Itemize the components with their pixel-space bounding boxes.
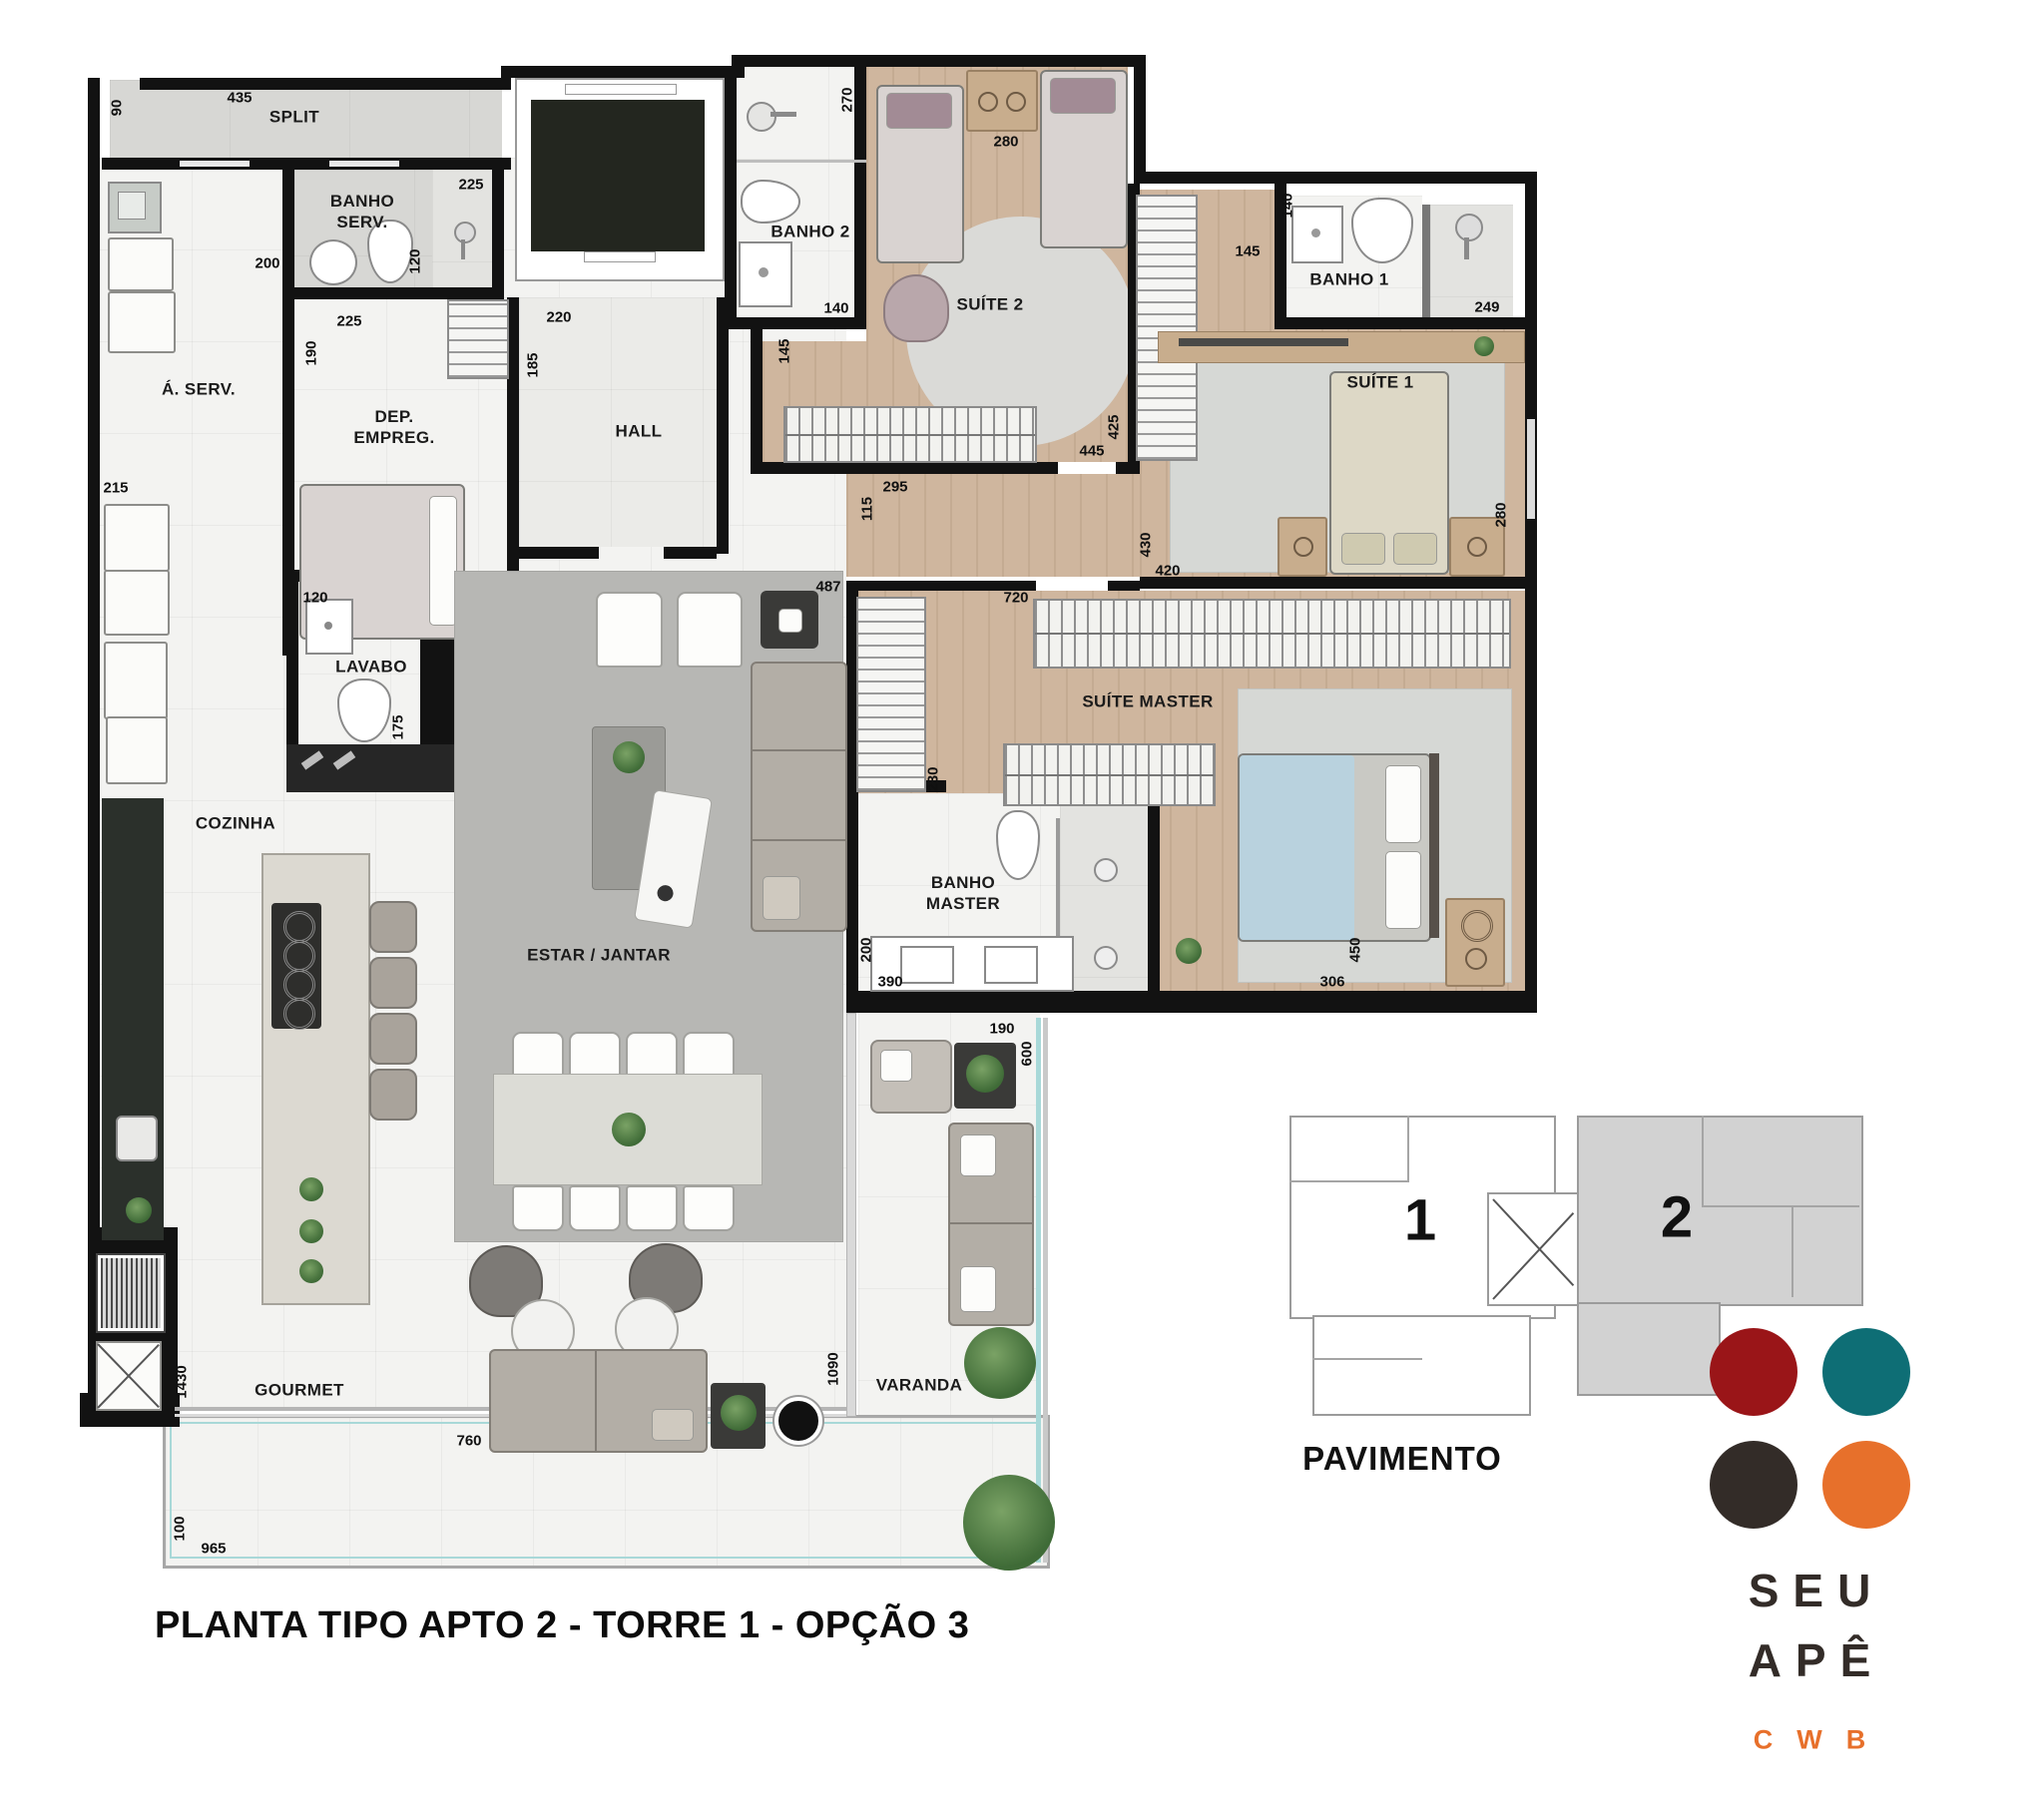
wall [1134, 172, 1537, 184]
sofa-seam [950, 1222, 1032, 1224]
burner-icon [283, 998, 315, 1030]
keyplan-unit1-number: 1 [1404, 1187, 1436, 1254]
logo-word-ape: APÊ [1735, 1633, 1885, 1687]
room-label-banho1: BANHO 1 [1309, 268, 1388, 289]
room-label-varanda: VARANDA [876, 1374, 963, 1395]
pillow [960, 1134, 996, 1176]
pillow [886, 93, 952, 129]
wall [102, 158, 511, 170]
dim-hall-depth: 185 [525, 352, 542, 377]
fridge [104, 642, 168, 719]
banho-serv-sink [309, 239, 357, 285]
dim-split-depth: 90 [109, 100, 126, 117]
burner-icon [283, 969, 315, 1001]
varanda-outer-rim [1043, 1018, 1048, 1563]
wall [725, 67, 737, 329]
vanity-sink [984, 946, 1038, 984]
wall [664, 547, 717, 559]
dim-estar-width: 487 [815, 579, 840, 596]
wall [1525, 184, 1537, 1013]
dim-suite2-door: 145 [776, 338, 793, 363]
dim-closet-depth: 425 [1106, 414, 1123, 439]
room-label-hall: HALL [616, 420, 663, 441]
dim-aserv-width: 215 [103, 480, 128, 497]
dim-varanda-length: 1090 [825, 1352, 842, 1385]
dining-chair [683, 1185, 735, 1231]
shower-partition [1422, 205, 1430, 317]
x-line [1492, 1212, 1574, 1300]
tree [963, 1475, 1055, 1571]
nightstand [966, 70, 1038, 132]
dim-dep-width: 225 [336, 313, 361, 330]
lavabo-sink [305, 599, 353, 655]
dining-chair [569, 1185, 621, 1231]
lamp-icon [1006, 92, 1026, 112]
cabinet [104, 504, 170, 572]
armchair [677, 592, 743, 668]
varanda-side-wall [846, 1013, 856, 1417]
plant [612, 1113, 646, 1146]
sofa-varanda [948, 1123, 1034, 1326]
dim-suite1-depth: 280 [1493, 502, 1510, 527]
sofa-seam [753, 839, 845, 841]
sofa-gourmet [489, 1349, 708, 1453]
dim-gourmet-depth: 1430 [174, 1365, 191, 1398]
duct-xbox [96, 1341, 162, 1411]
vanity-sink [900, 946, 954, 984]
drain-dot [324, 622, 332, 630]
lamp-icon [1293, 537, 1313, 557]
plant-large [964, 1327, 1036, 1399]
dim-varanda-glass: 600 [1019, 1041, 1036, 1066]
drain-dot [1311, 228, 1320, 237]
plant [721, 1395, 757, 1431]
decor [656, 884, 674, 902]
lamp-icon [978, 92, 998, 112]
keyplan-line [1312, 1358, 1422, 1360]
dim-dep-depth: 190 [303, 340, 320, 365]
dim-suite1-door: 420 [1155, 563, 1180, 580]
shower-stem [1464, 237, 1469, 259]
room-label-lavabo: LAVABO [335, 656, 407, 677]
room-label-suite2: SUÍTE 2 [956, 293, 1023, 314]
tv-icon [1179, 338, 1348, 346]
drain-dot [759, 267, 768, 277]
room-label-split: SPLIT [269, 106, 319, 127]
planter-box [954, 1043, 1016, 1109]
logo-dot-red [1710, 1328, 1797, 1416]
bed-suite2 [876, 85, 964, 263]
dim-suite2-width: 445 [1079, 443, 1104, 460]
room-label-cozinha: COZINHA [196, 812, 275, 833]
stool [369, 901, 417, 953]
logo-word-cwb: CWB [1730, 1725, 1889, 1756]
keyplan-unit2-number: 2 [1661, 1184, 1693, 1251]
keyplan-line [1702, 1116, 1704, 1205]
wall [492, 170, 504, 299]
dim-banho1-door: 145 [1235, 243, 1260, 260]
dim-banho-master-depth: 200 [858, 937, 875, 962]
armchair [870, 1040, 952, 1114]
dim-split-width: 435 [227, 90, 252, 107]
bed-suite-master [1238, 753, 1431, 942]
dim-banho1-sink: 140 [1279, 193, 1296, 218]
dim-master-width: 306 [1319, 974, 1344, 991]
dim-lavabo-depth: 175 [390, 714, 407, 739]
plant [1474, 336, 1494, 356]
closet-column [856, 597, 926, 792]
dim-master-closet: 720 [1003, 590, 1028, 607]
pillow [1385, 765, 1421, 843]
bench-speaker [1445, 898, 1505, 987]
room-label-a-serv: Á. SERV. [162, 378, 236, 399]
keyplan-unit2-body [1577, 1116, 1863, 1306]
dim-banho-serv-depth: 120 [407, 248, 424, 273]
logo-dot-teal [1822, 1328, 1910, 1416]
room-label-suite-master: SUÍTE MASTER [1082, 690, 1213, 711]
shower-stem [461, 239, 465, 259]
window-slit [180, 161, 250, 167]
stool [369, 957, 417, 1009]
dining-chair [626, 1185, 678, 1231]
blanket [1240, 755, 1354, 940]
sofa-seam [595, 1351, 597, 1451]
pillow [960, 1266, 996, 1312]
decor [778, 609, 802, 633]
logo-dot-orange [1822, 1441, 1910, 1529]
dim-banho-serv-width: 225 [458, 177, 483, 194]
dim-suite2-beds: 280 [993, 134, 1018, 151]
plant [299, 1259, 323, 1283]
keyplan-line [1791, 1205, 1793, 1297]
wall [1148, 793, 1160, 991]
wall [1275, 317, 1525, 329]
keyplan-line [1702, 1205, 1859, 1207]
dim-banho1-width: 249 [1474, 299, 1499, 316]
dining-chair [512, 1185, 564, 1231]
dim-master-bed-wall: 450 [1347, 937, 1364, 962]
suite1-shelf [1158, 331, 1525, 363]
sofa-seam [753, 749, 845, 751]
wall [751, 329, 763, 462]
shower-arm [770, 112, 796, 117]
dining-table [493, 1074, 763, 1185]
drain-icon [1094, 946, 1118, 970]
plant [126, 1197, 152, 1223]
sofa [751, 662, 847, 932]
x-line [1492, 1198, 1574, 1286]
dim-terrace-width: 965 [201, 1541, 226, 1558]
wall [282, 170, 294, 287]
plant [299, 1177, 323, 1201]
pillow [880, 1050, 912, 1082]
washer [108, 237, 174, 291]
closet-column [1136, 195, 1198, 461]
pillow [1050, 78, 1116, 114]
plan-title: PLANTA TIPO APTO 2 - TORRE 1 - OPÇÃO 3 [155, 1604, 969, 1647]
cooktop [271, 903, 321, 1029]
nightstand [1277, 517, 1327, 577]
pillow [652, 1409, 694, 1441]
dim-aserv-corridor: 200 [255, 255, 279, 272]
keyplan-line [1407, 1116, 1409, 1182]
lamp-icon [1467, 537, 1487, 557]
laundry-tank [108, 182, 162, 233]
kitchen-counter-granite [102, 798, 164, 1240]
wall [717, 297, 729, 554]
wall [286, 582, 298, 750]
bed-suite1 [1329, 371, 1449, 575]
dim-banho2-depth: 270 [839, 87, 856, 112]
bed-suite2 [1040, 70, 1128, 248]
dining-chair [626, 1032, 678, 1078]
keyplan-unit2-extension [1577, 1302, 1721, 1396]
pillow [1341, 533, 1385, 565]
room-label-banho-serv: BANHO SERV. [330, 191, 394, 233]
dryer [108, 291, 176, 353]
tank-basin [118, 192, 146, 220]
plant [299, 1219, 323, 1243]
window-slit [1527, 419, 1535, 519]
wall [846, 991, 1537, 1013]
wall [1140, 577, 1525, 589]
elevator-door [584, 251, 656, 262]
shower-head-icon [1455, 214, 1483, 241]
keyplan-caption: PAVIMENTO [1302, 1440, 1502, 1478]
wardrobe [1033, 599, 1511, 669]
keyplan-core [1487, 1192, 1581, 1306]
room-label-gourmet: GOURMET [255, 1379, 344, 1400]
armchair [596, 592, 663, 668]
banho1-sink [1291, 206, 1343, 263]
dim-banho2-width: 140 [823, 300, 848, 317]
wall [1116, 462, 1140, 474]
burner-icon [283, 940, 315, 972]
wall [282, 287, 504, 299]
dining-chair [683, 1032, 735, 1078]
dim-suite1-hall: 430 [1138, 532, 1155, 557]
elevator-door [565, 84, 677, 95]
keyplan-line [1289, 1180, 1409, 1182]
wall [501, 66, 745, 78]
stool [369, 1013, 417, 1065]
window-slit [329, 161, 399, 167]
dim-varanda-width: 190 [989, 1021, 1014, 1038]
logo-dot-dark [1710, 1441, 1797, 1529]
varanda-glass-rail [1036, 1018, 1041, 1563]
plant [1176, 938, 1202, 964]
speaker-icon [1465, 948, 1487, 970]
wall [1108, 581, 1140, 591]
wardrobe [1003, 743, 1216, 806]
planter-box [711, 1383, 766, 1449]
stool [369, 1069, 417, 1121]
shower-head-icon [454, 222, 476, 243]
dim-hall-width: 220 [546, 309, 571, 326]
plant [613, 741, 645, 773]
drain-icon [1094, 858, 1118, 882]
armchair [883, 274, 949, 342]
room-label-estar-jantar: ESTAR / JANTAR [527, 944, 671, 965]
wall [751, 462, 1058, 474]
logo-word-seu: SEU [1735, 1564, 1885, 1617]
lavabo-wet-wall [286, 744, 456, 792]
shower-head-icon [747, 102, 776, 132]
plant [966, 1055, 1004, 1093]
shower-divider [737, 160, 866, 163]
room-label-dep-empreg: DEP. EMPREG. [353, 406, 434, 449]
oven-tower [106, 716, 168, 784]
fire-pit [774, 1397, 822, 1445]
headboard [1429, 753, 1439, 938]
dim-gourmet-door: 760 [456, 1433, 481, 1450]
keyplan-unit1-extension [1312, 1315, 1531, 1416]
room-label-banho2: BANHO 2 [770, 221, 849, 241]
pillow [1385, 851, 1421, 929]
dining-chair [569, 1032, 621, 1078]
wardrobe [447, 299, 509, 379]
kitchen-sink [116, 1116, 158, 1161]
room-label-banho-master: BANHO MASTER [926, 872, 1000, 915]
pillow [763, 876, 800, 920]
floorplan-page: SPLIT BANHO SERV. DEP. EMPREG. HALL BANH… [0, 0, 2044, 1812]
wall [1134, 55, 1146, 184]
wall [732, 55, 1146, 67]
side-table [761, 591, 818, 649]
dining-chair [512, 1032, 564, 1078]
cabinet [104, 570, 170, 636]
dim-terrace-depth: 100 [172, 1516, 189, 1541]
elevator-shaft [531, 100, 705, 251]
wall [519, 547, 599, 559]
dim-corridor-depth: 115 [859, 497, 876, 521]
wall [854, 67, 866, 329]
wall [140, 78, 511, 90]
banho2-vanity [739, 241, 792, 307]
dim-banho-master-vanity: 390 [877, 974, 902, 991]
pillow [1393, 533, 1437, 565]
dim-corridor-width: 295 [882, 479, 907, 496]
dim-lavabo-width: 120 [302, 590, 327, 607]
pillow [429, 496, 457, 626]
dim-master-closet-depth: 230 [925, 766, 942, 791]
speaker-icon [1461, 910, 1493, 942]
wall [88, 78, 100, 1427]
wall [725, 317, 866, 329]
room-label-suite1: SUÍTE 1 [1346, 371, 1413, 392]
wardrobe [783, 406, 1037, 463]
burner-icon [283, 911, 315, 943]
vent-louver [98, 1255, 164, 1331]
